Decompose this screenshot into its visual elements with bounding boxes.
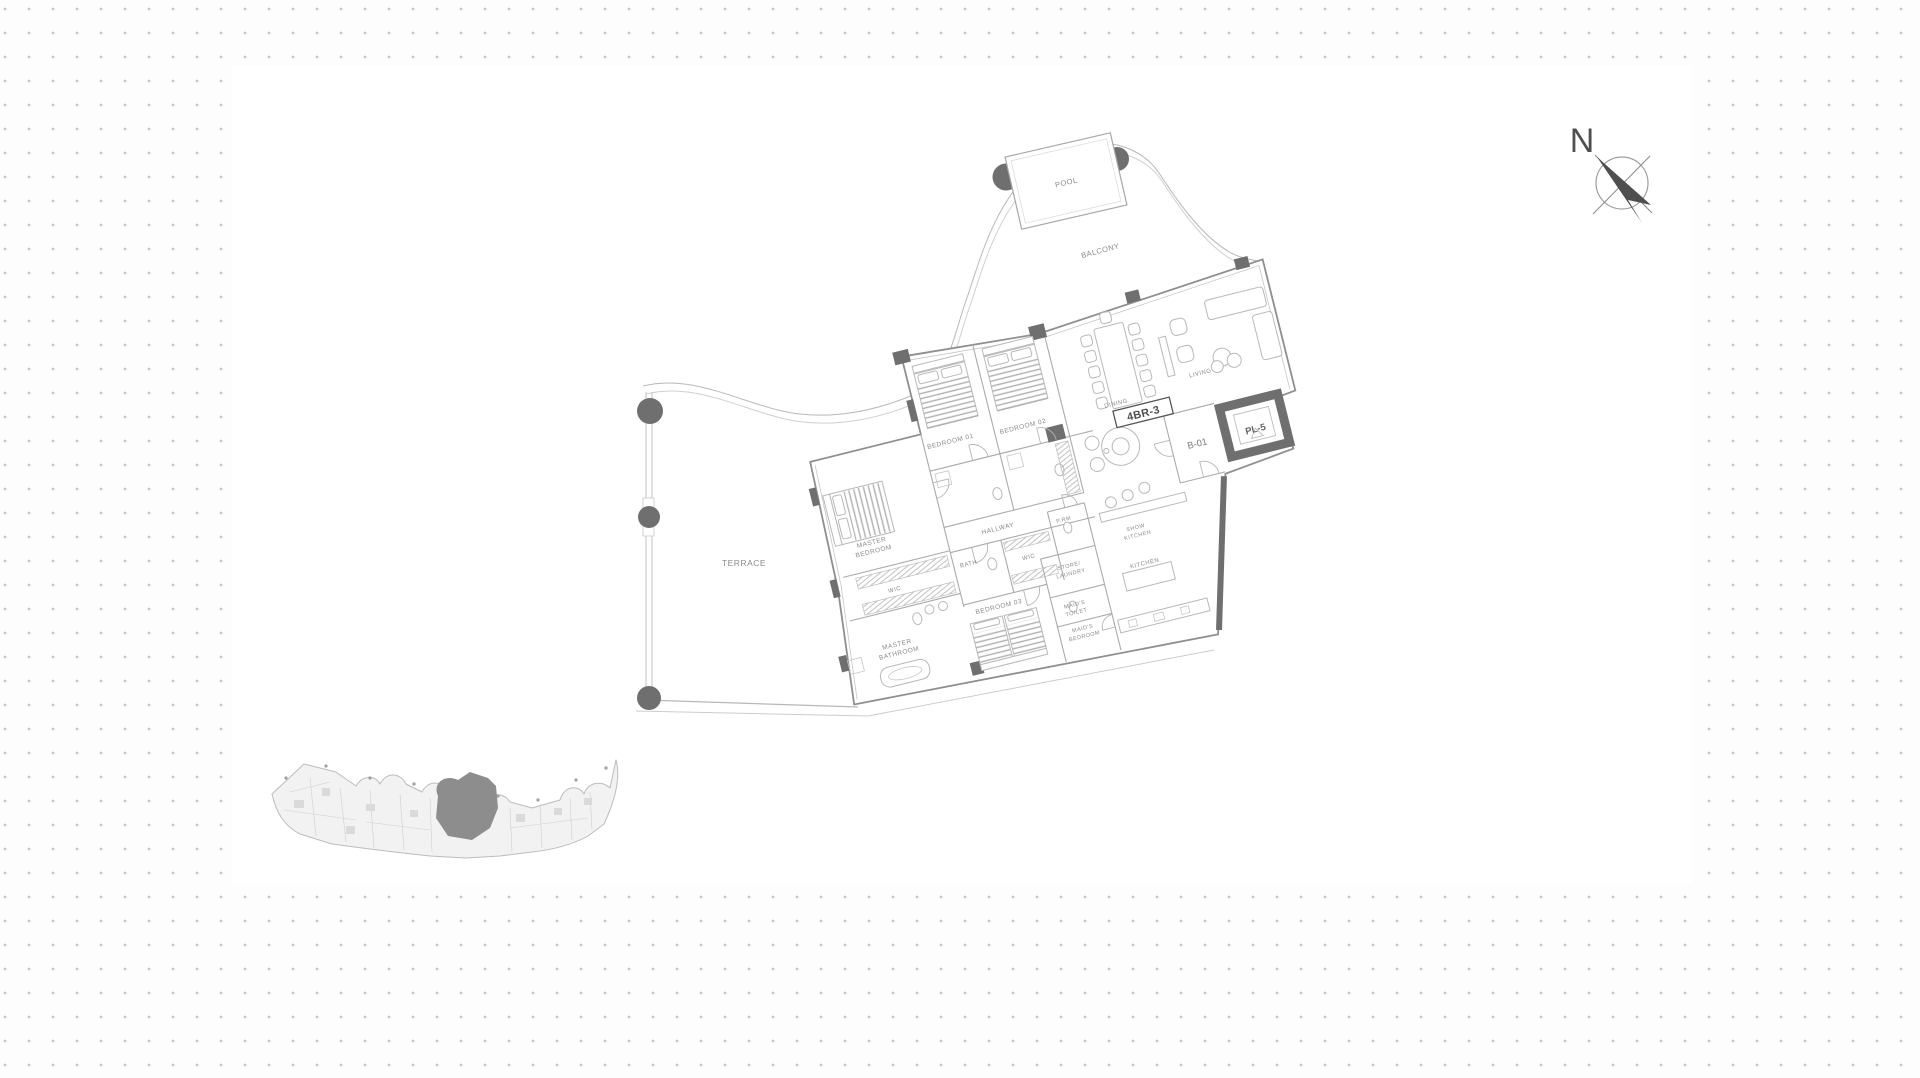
terrace-bottom-edge	[645, 700, 858, 707]
terrace-column	[638, 506, 660, 528]
compass-north-label: N	[1570, 122, 1595, 160]
terrace-column	[637, 686, 661, 710]
key-plan	[272, 760, 618, 858]
floorplan-canvas[interactable]: TERRACE BALCONY POOL	[0, 0, 1920, 1078]
compass: N	[1570, 122, 1652, 223]
terrace-label: TERRACE	[722, 558, 766, 568]
unit-plan: BEDROOM 01 BEDROOM 02 DINING LIVING MAST…	[768, 253, 1348, 725]
pool: POOL	[1005, 133, 1127, 229]
balcony-label: BALCONY	[1080, 241, 1120, 260]
terrace-column	[637, 398, 663, 424]
